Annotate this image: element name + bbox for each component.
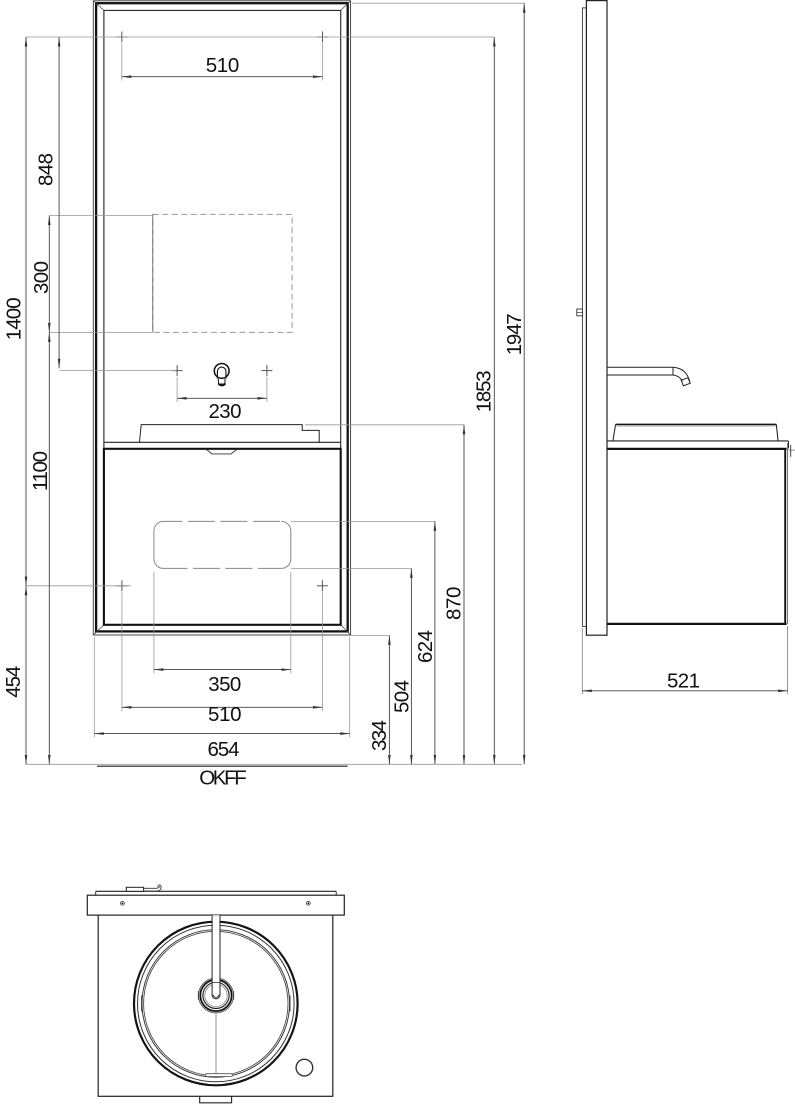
svg-text:624: 624 bbox=[414, 630, 437, 663]
svg-text:1400: 1400 bbox=[3, 297, 26, 340]
svg-text:504: 504 bbox=[391, 680, 414, 713]
svg-text:510: 510 bbox=[206, 54, 240, 77]
svg-text:848: 848 bbox=[35, 153, 58, 186]
svg-text:510: 510 bbox=[208, 703, 242, 726]
svg-text:300: 300 bbox=[30, 261, 53, 294]
svg-text:521: 521 bbox=[667, 670, 700, 693]
svg-text:334: 334 bbox=[368, 720, 391, 751]
svg-text:870: 870 bbox=[443, 587, 466, 621]
svg-text:OKFF: OKFF bbox=[199, 767, 247, 790]
svg-text:1947: 1947 bbox=[503, 313, 526, 355]
svg-text:654: 654 bbox=[208, 738, 240, 761]
svg-text:230: 230 bbox=[209, 400, 242, 423]
svg-text:454: 454 bbox=[2, 666, 25, 698]
svg-text:350: 350 bbox=[208, 673, 241, 696]
svg-text:1853: 1853 bbox=[473, 370, 496, 412]
svg-text:1100: 1100 bbox=[29, 451, 52, 491]
